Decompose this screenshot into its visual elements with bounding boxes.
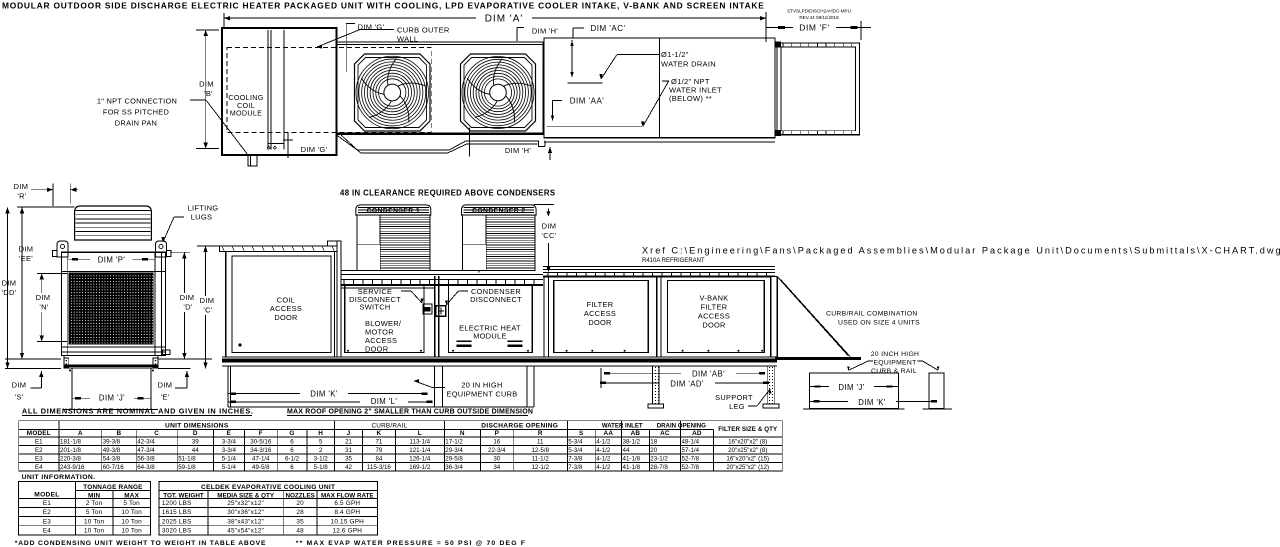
svg-text:AC: AC <box>660 430 670 437</box>
svg-text:J: J <box>347 430 351 437</box>
svg-text:31: 31 <box>345 447 352 454</box>
svg-text:4-1/2: 4-1/2 <box>596 447 611 454</box>
svg-text:'E': 'E' <box>161 393 170 402</box>
svg-text:12-5/8: 12-5/8 <box>531 447 549 454</box>
svg-text:10 Ton: 10 Ton <box>122 518 143 525</box>
svg-text:S: S <box>579 430 584 437</box>
svg-text:12-1/2: 12-1/2 <box>531 464 549 471</box>
svg-text:38-1/2: 38-1/2 <box>623 438 641 445</box>
svg-text:CURB/RAIL COMBINATION: CURB/RAIL COMBINATION <box>826 311 918 318</box>
svg-text:MODULAR OUTDOOR SIDE DISCHARGE: MODULAR OUTDOOR SIDE DISCHARGE ELECTRIC … <box>2 1 765 11</box>
svg-text:MAX FLOW RATE: MAX FLOW RATE <box>321 492 374 499</box>
svg-text:E: E <box>227 430 232 437</box>
svg-text:1615 LBS: 1615 LBS <box>162 509 192 516</box>
svg-text:N: N <box>460 430 465 437</box>
svg-text:59-1/8: 59-1/8 <box>178 464 196 471</box>
svg-text:ACCESS: ACCESS <box>270 304 302 313</box>
svg-text:52-7/8: 52-7/8 <box>682 455 700 462</box>
svg-text:DIM 'AB': DIM 'AB' <box>692 370 725 379</box>
svg-text:'S': 'S' <box>15 393 24 402</box>
svg-text:K: K <box>376 430 381 437</box>
svg-text:6-1/2: 6-1/2 <box>285 455 300 462</box>
svg-text:'C': 'C' <box>203 306 212 315</box>
svg-text:LUGS: LUGS <box>191 213 213 222</box>
svg-text:DIM 'K': DIM 'K' <box>858 398 886 407</box>
svg-text:NOZZLES: NOZZLES <box>285 492 314 499</box>
svg-text:'D': 'D' <box>183 303 192 312</box>
svg-text:*ADD CONDENSING UNIT WEIGHT TO: *ADD CONDENSING UNIT WEIGHT TO WEIGHT IN… <box>15 540 267 547</box>
svg-text:DIM: DIM <box>12 381 27 390</box>
svg-text:(BELOW) **: (BELOW) ** <box>669 94 712 103</box>
svg-text:34-3/16: 34-3/16 <box>250 447 272 454</box>
svg-text:16: 16 <box>493 438 500 445</box>
svg-text:FOR SS PITCHED: FOR SS PITCHED <box>103 108 169 117</box>
svg-text:DIM 'G': DIM 'G' <box>301 145 328 154</box>
svg-text:41-1/8: 41-1/8 <box>623 464 641 471</box>
svg-text:DIM 'AA': DIM 'AA' <box>570 97 605 106</box>
svg-text:ALL DIMENSIONS ARE NOMINAL AND: ALL DIMENSIONS ARE NOMINAL AND GIVEN IN … <box>22 407 254 416</box>
svg-text:201-1/8: 201-1/8 <box>60 447 82 454</box>
svg-text:SWITCH: SWITCH <box>360 303 391 312</box>
svg-text:AD: AD <box>692 430 702 437</box>
svg-text:52-7/8: 52-7/8 <box>682 464 700 471</box>
svg-text:6: 6 <box>290 447 294 454</box>
svg-text:DISCHARGE OPENING: DISCHARGE OPENING <box>481 422 558 429</box>
svg-text:LEG: LEG <box>729 402 745 411</box>
svg-text:54-3/8: 54-3/8 <box>103 455 121 462</box>
svg-text:DIM: DIM <box>542 222 557 231</box>
svg-text:20 IN HIGH: 20 IN HIGH <box>461 381 502 390</box>
svg-text:30"x36"x12": 30"x36"x12" <box>227 509 264 516</box>
svg-text:C: C <box>154 430 159 437</box>
svg-text:48: 48 <box>296 528 304 535</box>
svg-text:220-3/8: 220-3/8 <box>60 455 82 462</box>
svg-text:30-5/16: 30-5/16 <box>250 438 272 445</box>
svg-text:5-3/4: 5-3/4 <box>568 438 583 445</box>
svg-text:DRAIN OPENING: DRAIN OPENING <box>657 422 706 429</box>
svg-text:17-1/2: 17-1/2 <box>445 438 463 445</box>
svg-text:AB: AB <box>631 430 641 437</box>
svg-text:10.15 GPH: 10.15 GPH <box>331 518 365 525</box>
svg-text:5: 5 <box>319 438 323 445</box>
svg-text:5-1/8: 5-1/8 <box>314 464 329 471</box>
svg-text:CURB/RAIL: CURB/RAIL <box>371 422 407 429</box>
svg-text:42: 42 <box>345 464 352 471</box>
svg-text:5-1/4: 5-1/4 <box>222 455 237 462</box>
svg-text:EQUIPMENT CURB: EQUIPMENT CURB <box>447 390 518 399</box>
svg-text:TONNAGE RANGE: TONNAGE RANGE <box>83 484 143 491</box>
svg-text:49-5/8: 49-5/8 <box>252 464 270 471</box>
svg-text:36-3/4: 36-3/4 <box>445 464 463 471</box>
svg-text:38"x43"x12": 38"x43"x12" <box>227 518 264 525</box>
svg-text:FILTER: FILTER <box>701 303 728 312</box>
svg-text:47-1/4: 47-1/4 <box>252 455 270 462</box>
svg-text:29-3/4: 29-3/4 <box>445 447 463 454</box>
svg-text:E1: E1 <box>35 438 43 445</box>
svg-text:DIM 'J': DIM 'J' <box>838 383 864 392</box>
svg-text:48 IN CLEARANCE REQUIRED ABOVE: 48 IN CLEARANCE REQUIRED ABOVE CONDENSER… <box>340 189 555 198</box>
svg-text:'EE': 'EE' <box>19 254 33 263</box>
svg-text:DIM 'AD': DIM 'AD' <box>670 379 704 388</box>
svg-text:64-3/8: 64-3/8 <box>137 464 155 471</box>
svg-text:ACCESS: ACCESS <box>698 312 730 321</box>
svg-text:CONDENSER 2: CONDENSER 2 <box>472 208 526 215</box>
svg-text:DOOR: DOOR <box>365 345 388 354</box>
svg-text:23-1/2: 23-1/2 <box>650 455 668 462</box>
svg-text:5 Ton: 5 Ton <box>123 500 140 507</box>
svg-text:20: 20 <box>296 500 304 507</box>
svg-text:3020 LBS: 3020 LBS <box>162 528 192 535</box>
svg-text:R: R <box>538 430 543 437</box>
svg-text:60-7/16: 60-7/16 <box>103 464 125 471</box>
svg-text:'R': 'R' <box>17 192 26 201</box>
svg-text:TOT. WEIGHT: TOT. WEIGHT <box>163 492 204 499</box>
svg-text:44: 44 <box>623 447 630 454</box>
svg-text:DOOR: DOOR <box>588 318 611 327</box>
svg-text:E2: E2 <box>35 447 43 454</box>
svg-text:CURB OUTER: CURB OUTER <box>397 26 450 35</box>
svg-text:44: 44 <box>192 447 199 454</box>
svg-text:E2: E2 <box>43 509 51 516</box>
svg-text:WATER DRAIN: WATER DRAIN <box>661 60 716 69</box>
svg-text:DIM 'AC': DIM 'AC' <box>590 24 625 33</box>
svg-text:48-1/4: 48-1/4 <box>682 438 700 445</box>
svg-text:E3: E3 <box>35 455 43 462</box>
svg-text:2025 LBS: 2025 LBS <box>162 518 192 525</box>
svg-text:3-3/4: 3-3/4 <box>222 447 237 454</box>
svg-text:39-3/8: 39-3/8 <box>103 438 121 445</box>
svg-text:45"x54"x12": 45"x54"x12" <box>227 528 264 535</box>
svg-text:20 INCH HIGH: 20 INCH HIGH <box>871 351 920 358</box>
svg-text:A: A <box>78 430 83 437</box>
svg-text:MAX ROOF OPENING 2" SMALLER TH: MAX ROOF OPENING 2" SMALLER THAN CURB OU… <box>287 409 533 416</box>
svg-text:35: 35 <box>345 455 352 462</box>
svg-text:H: H <box>318 430 323 437</box>
svg-text:71: 71 <box>375 438 382 445</box>
svg-text:E3: E3 <box>43 518 51 525</box>
svg-text:1" NPT CONNECTION: 1" NPT CONNECTION <box>97 97 177 106</box>
svg-text:'DD': 'DD' <box>2 288 17 297</box>
svg-text:10 Ton: 10 Ton <box>84 528 105 535</box>
svg-text:3-1/2: 3-1/2 <box>314 455 329 462</box>
svg-text:2 Ton: 2 Ton <box>86 500 103 507</box>
svg-text:25"x32"x12": 25"x32"x12" <box>227 500 264 507</box>
svg-text:169-1/2: 169-1/2 <box>409 464 431 471</box>
svg-text:** MAX EVAP WATER PRESSURE = 5: ** MAX EVAP WATER PRESSURE = 50 PSI @ 70… <box>296 540 526 547</box>
svg-text:P: P <box>495 430 500 437</box>
svg-text:B: B <box>117 430 122 437</box>
svg-text:E4: E4 <box>43 528 51 535</box>
svg-text:WATER INLET: WATER INLET <box>602 422 643 429</box>
svg-text:20: 20 <box>650 447 657 454</box>
svg-text:DOOR: DOOR <box>702 321 725 330</box>
svg-text:R410A REFRIGERANT: R410A REFRIGERANT <box>642 258 705 264</box>
svg-text:22-3/4: 22-3/4 <box>488 447 506 454</box>
svg-text:11-1/2: 11-1/2 <box>532 455 550 462</box>
svg-text:7-3/8: 7-3/8 <box>568 464 583 471</box>
svg-text:49-3/8: 49-3/8 <box>103 447 121 454</box>
svg-text:DIM: DIM <box>180 293 195 302</box>
svg-text:DIM 'F': DIM 'F' <box>799 23 830 33</box>
svg-text:MODULE: MODULE <box>230 109 263 118</box>
svg-text:CONDENSER 1: CONDENSER 1 <box>367 208 421 215</box>
svg-text:USED ON SIZE 4 UNITS: USED ON SIZE 4 UNITS <box>838 320 920 327</box>
svg-text:Ø1-1/2": Ø1-1/2" <box>661 50 689 59</box>
svg-text:E4: E4 <box>35 464 43 471</box>
svg-text:FILTER SIZE & QTY: FILTER SIZE & QTY <box>718 426 778 433</box>
svg-text:29-5/8: 29-5/8 <box>445 455 463 462</box>
svg-text:G: G <box>289 430 294 437</box>
svg-text:MIN: MIN <box>88 492 100 499</box>
svg-text:L: L <box>418 430 422 437</box>
svg-text:21: 21 <box>345 438 352 445</box>
svg-text:18: 18 <box>650 438 657 445</box>
svg-text:DIM 'H': DIM 'H' <box>505 146 531 155</box>
svg-text:LIFTING: LIFTING <box>188 204 219 213</box>
svg-text:DIM 'G': DIM 'G' <box>358 23 385 32</box>
svg-text:121-1/4: 121-1/4 <box>409 447 431 454</box>
svg-text:30: 30 <box>493 455 500 462</box>
svg-text:MODEL: MODEL <box>27 430 51 437</box>
svg-text:DIM 'P': DIM 'P' <box>98 256 126 265</box>
svg-text:12.6 GPH: 12.6 GPH <box>332 528 362 535</box>
svg-text:115-3/16: 115-3/16 <box>367 464 392 471</box>
svg-text:MODEL: MODEL <box>34 492 59 499</box>
svg-text:84: 84 <box>375 455 382 462</box>
svg-text:DIM: DIM <box>14 182 29 191</box>
svg-text:41-1/8: 41-1/8 <box>623 455 641 462</box>
svg-text:42-3/4: 42-3/4 <box>137 438 155 445</box>
svg-text:DOOR: DOOR <box>274 313 297 322</box>
svg-text:39: 39 <box>192 438 199 445</box>
svg-text:REV.44 09/11/2018: REV.44 09/11/2018 <box>799 15 839 20</box>
svg-text:DIM: DIM <box>36 293 51 302</box>
svg-text:E1: E1 <box>43 500 51 507</box>
svg-text:'CC': 'CC' <box>542 231 557 240</box>
svg-text:20"x25"x2" (12): 20"x25"x2" (12) <box>726 464 769 471</box>
svg-text:MODULE: MODULE <box>473 332 506 341</box>
svg-text:DISCONNECT: DISCONNECT <box>470 295 522 304</box>
svg-text:F: F <box>259 430 263 437</box>
svg-text:56-3/8: 56-3/8 <box>137 455 155 462</box>
svg-text:34: 34 <box>493 464 500 471</box>
svg-text:'B': 'B' <box>204 89 213 98</box>
svg-text:47-3/4: 47-3/4 <box>137 447 155 454</box>
svg-text:28-7/8: 28-7/8 <box>650 464 668 471</box>
svg-text:6: 6 <box>290 464 294 471</box>
svg-text:DIM 'H': DIM 'H' <box>532 27 558 36</box>
svg-text:243-9/16: 243-9/16 <box>60 464 85 471</box>
svg-text:SUPPORT: SUPPORT <box>715 393 753 402</box>
svg-text:10 Ton: 10 Ton <box>122 509 143 516</box>
svg-text:8.4 GPH: 8.4 GPH <box>334 509 360 516</box>
svg-text:113-1/4: 113-1/4 <box>410 438 431 445</box>
svg-text:5-1/4: 5-1/4 <box>222 464 237 471</box>
svg-text:DIM: DIM <box>158 381 173 390</box>
svg-text:126-1/4: 126-1/4 <box>409 455 431 462</box>
svg-text:28: 28 <box>296 509 304 516</box>
svg-text:MEDIA SIZE & QTY: MEDIA SIZE & QTY <box>217 492 275 499</box>
svg-text:DIM 'L': DIM 'L' <box>371 397 398 406</box>
svg-text:STVSLPDIDISCH2AHDC-MPU: STVSLPDIDISCH2AHDC-MPU <box>787 9 851 14</box>
svg-text:10 Ton: 10 Ton <box>122 528 143 535</box>
svg-text:20"x25"x2" (8): 20"x25"x2" (8) <box>728 447 767 454</box>
svg-text:5-3/4: 5-3/4 <box>568 447 583 454</box>
svg-text:181-1/8: 181-1/8 <box>60 438 82 445</box>
svg-text:COIL: COIL <box>277 296 295 305</box>
svg-text:DIM: DIM <box>2 279 17 288</box>
svg-text:4-1/2: 4-1/2 <box>596 455 611 462</box>
svg-text:DIM 'K': DIM 'K' <box>310 389 338 398</box>
svg-text:5 Ton: 5 Ton <box>86 509 103 516</box>
svg-text:6.5 GPH: 6.5 GPH <box>334 500 360 507</box>
svg-text:7-3/8: 7-3/8 <box>568 455 583 462</box>
svg-text:FILTER: FILTER <box>587 300 614 309</box>
svg-text:11: 11 <box>537 438 544 445</box>
svg-text:57-1/4: 57-1/4 <box>682 447 700 454</box>
svg-text:EQUIPMENT: EQUIPMENT <box>873 360 916 367</box>
svg-text:UNIT DIMENSIONS: UNIT DIMENSIONS <box>165 422 229 429</box>
svg-text:UNIT INFORMATION.: UNIT INFORMATION. <box>22 474 96 481</box>
svg-text:1200 LBS: 1200 LBS <box>162 500 192 507</box>
svg-text:DIM: DIM <box>200 296 215 305</box>
svg-text:DIM 'A': DIM 'A' <box>485 14 524 25</box>
svg-text:4-1/2: 4-1/2 <box>596 438 611 445</box>
svg-text:DIM: DIM <box>19 245 34 254</box>
svg-text:CELDEK EVAPORATIVE COOLING UNI: CELDEK EVAPORATIVE COOLING UNIT <box>201 484 335 491</box>
svg-text:4-1/2: 4-1/2 <box>596 464 611 471</box>
svg-text:AA: AA <box>604 430 614 437</box>
svg-text:CURB & RAIL: CURB & RAIL <box>871 368 917 375</box>
svg-text:35: 35 <box>296 518 304 525</box>
svg-text:ACCESS: ACCESS <box>584 309 616 318</box>
svg-text:V-BANK: V-BANK <box>700 294 729 303</box>
svg-text:2: 2 <box>319 447 323 454</box>
svg-text:Xref C:\Engineering\Fans\Packa: Xref C:\Engineering\Fans\Packaged Assemb… <box>642 246 1280 256</box>
svg-text:51-1/8: 51-1/8 <box>178 455 196 462</box>
svg-text:16"x20"x2" (15): 16"x20"x2" (15) <box>726 455 769 462</box>
svg-text:DIM 'J': DIM 'J' <box>99 394 125 403</box>
svg-text:79: 79 <box>375 447 382 454</box>
svg-text:'N': 'N' <box>39 303 48 312</box>
svg-text:3-3/4: 3-3/4 <box>222 438 237 445</box>
svg-text:16"x20"x2" (8): 16"x20"x2" (8) <box>728 438 767 445</box>
svg-text:10 Ton: 10 Ton <box>84 518 105 525</box>
svg-text:DIM: DIM <box>199 80 214 89</box>
svg-text:6: 6 <box>290 438 294 445</box>
svg-text:DRAIN PAN: DRAIN PAN <box>115 119 157 128</box>
svg-text:D: D <box>193 430 198 437</box>
svg-text:MAX: MAX <box>124 492 139 499</box>
